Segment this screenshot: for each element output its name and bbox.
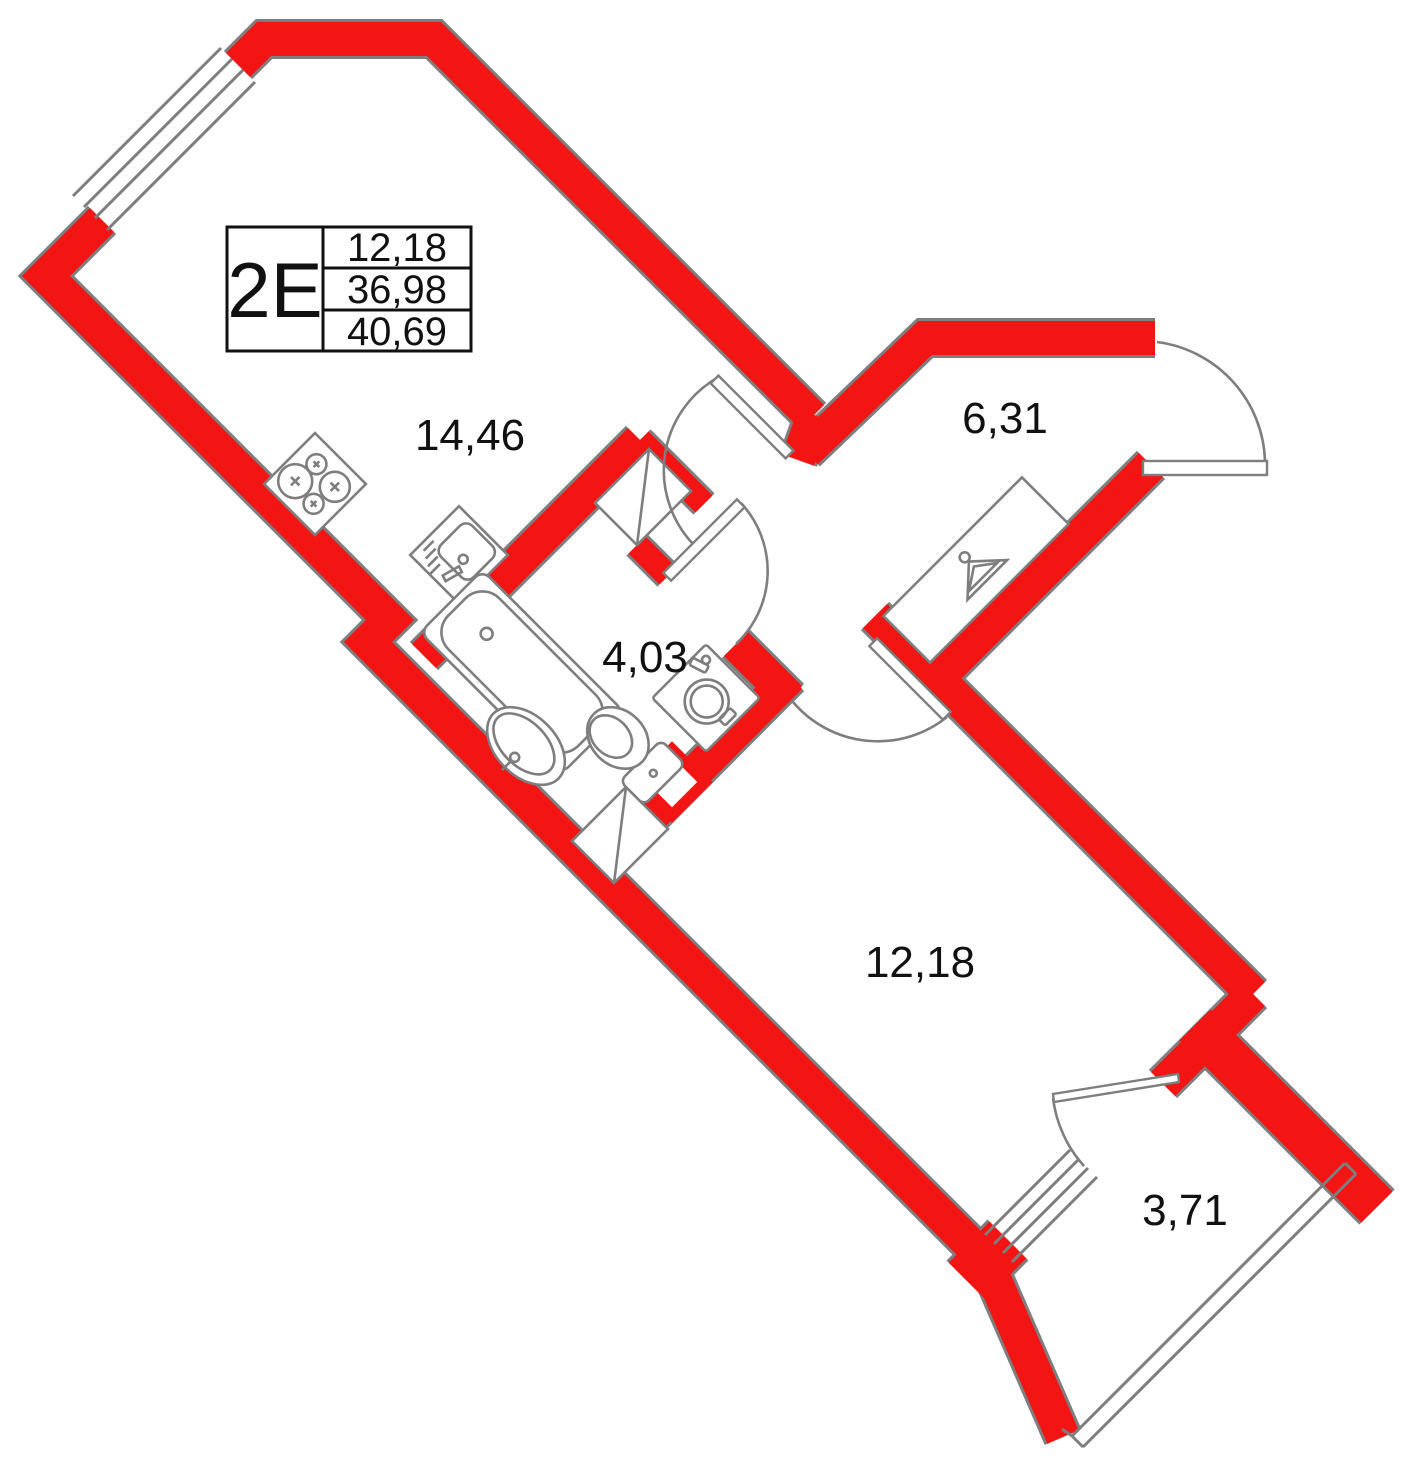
room-label-balcony: 3,71 bbox=[1142, 1186, 1228, 1235]
door-arc-bathroom bbox=[736, 503, 768, 644]
door-arc-entrance bbox=[1157, 342, 1265, 461]
room-label-hallway: 6,31 bbox=[962, 394, 1048, 443]
door-leaf-entrance bbox=[1143, 461, 1267, 475]
window-kitchen bbox=[73, 48, 255, 230]
title-block: 2E 12,18 36,98 40,69 bbox=[227, 226, 471, 354]
title-block-value-2: 36,98 bbox=[347, 268, 447, 312]
plan-code: 2E bbox=[227, 246, 322, 334]
title-block-value-3: 40,69 bbox=[347, 310, 447, 354]
wall-balcony-window-jamb bbox=[967, 1240, 1008, 1281]
floor-plan-svg: 2E 12,18 36,98 40,69 14,46 6,31 4,03 12,… bbox=[0, 0, 1401, 1473]
title-block-value-1: 12,18 bbox=[347, 226, 447, 270]
door-arc-bedroom bbox=[793, 702, 947, 741]
room-label-room: 12,18 bbox=[865, 938, 975, 987]
room-label-bathroom: 4,03 bbox=[602, 633, 688, 682]
door-arc-balcony bbox=[1053, 1098, 1084, 1166]
door-leaf-bathroom bbox=[663, 499, 744, 580]
floor-plan: 2E 12,18 36,98 40,69 14,46 6,31 4,03 12,… bbox=[0, 0, 1401, 1473]
door-leaf-balcony bbox=[1053, 1074, 1179, 1102]
room-label-kitchen-living: 14,46 bbox=[415, 411, 525, 460]
